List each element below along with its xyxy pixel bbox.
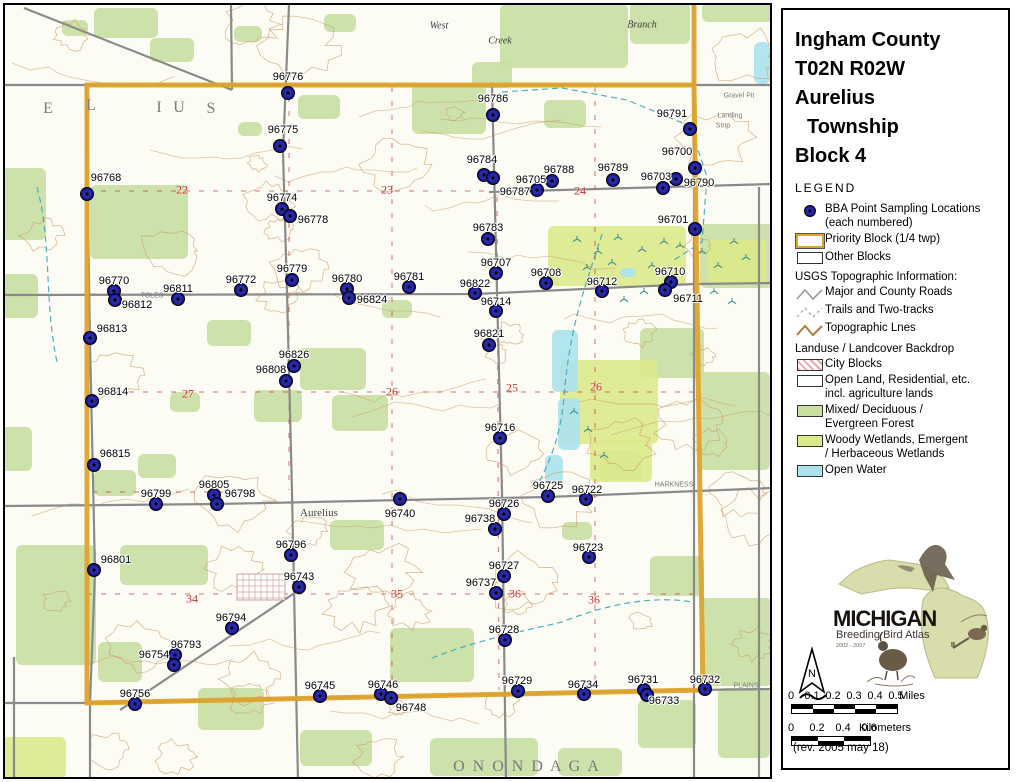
- bba-point-96821: [482, 338, 496, 352]
- place-label: West: [430, 21, 449, 32]
- bba-point-label: 96775: [268, 124, 299, 136]
- bba-point-96786: [486, 108, 500, 122]
- scale-tick: 0.2: [825, 690, 840, 702]
- legend-item-roads: Major and County Roads: [795, 286, 998, 301]
- bba-point-96779: [285, 273, 299, 287]
- bba-point-label: 96813: [97, 323, 128, 335]
- legend-item-wetland: Woody Wetlands, Emergent / Herbaceous We…: [795, 434, 998, 461]
- bba-point-label: 96734: [568, 679, 599, 691]
- bba-point-label: 96774: [267, 192, 298, 204]
- legend-item-label: Major and County Roads: [825, 286, 952, 300]
- title-line: Aurelius: [795, 84, 998, 113]
- bba-point-label: 96789: [598, 162, 629, 174]
- map-title: Ingham County T02N R02W Aurelius Townshi…: [795, 26, 998, 171]
- bba-point-label: 96705: [516, 174, 547, 186]
- bba-point-96788: [545, 174, 559, 188]
- bba-point-label: 96737: [466, 577, 497, 589]
- legend-item-label: Open Land, Residential, etc. incl. agric…: [825, 374, 970, 401]
- place-label: Aurelius: [300, 507, 338, 519]
- bba-point-label: 96768: [91, 172, 122, 184]
- bba-point-label: 96815: [100, 448, 131, 460]
- bba-point-label: 96799: [141, 488, 172, 500]
- other-blocks-icon: [797, 252, 823, 264]
- page: 2223242726252634353636 ELIUSO N O N D A …: [0, 0, 1021, 782]
- bba-point-96790: [656, 181, 670, 195]
- legend-item-open-water: Open Water: [795, 464, 998, 478]
- legend-item-forest: Mixed/ Deciduous / Evergreen Forest: [795, 404, 998, 431]
- svg-text:Breeding Bird Atlas: Breeding Bird Atlas: [836, 629, 930, 641]
- bba-point-label: 96790: [684, 177, 715, 189]
- legend-item-label: BBA Point Sampling Locations (each numbe…: [825, 203, 980, 230]
- bba-point-label: 96776: [273, 71, 304, 83]
- legend-item-label: Other Blocks: [825, 251, 891, 265]
- bba-point-label: 96808: [256, 364, 287, 376]
- open-water-swatch: [797, 465, 823, 477]
- bba-point-96776: [281, 86, 295, 100]
- scale-bar: [791, 704, 898, 714]
- bba-point-96711: [658, 283, 672, 297]
- place-label: S: [207, 100, 218, 118]
- svg-text:N: N: [808, 668, 816, 680]
- section-number: 23: [381, 183, 393, 198]
- section-number: 27: [182, 387, 194, 402]
- bba-point-label: 96727: [489, 560, 520, 572]
- bba-point-label: 96826: [279, 349, 310, 361]
- title-line: Ingham County: [795, 26, 998, 55]
- bba-point-label: 96712: [587, 276, 618, 288]
- bba-point-label: 96733: [649, 695, 680, 707]
- bba-point-96789: [606, 173, 620, 187]
- scale-tick: 0.3: [846, 690, 861, 702]
- bba-point-label: 96811: [163, 283, 193, 295]
- place-label: L: [86, 97, 98, 115]
- usgs-heading: USGS Topographic Information:: [795, 271, 998, 283]
- bba-point-96787: [486, 171, 500, 185]
- legend-item-open-land: Open Land, Residential, etc. incl. agric…: [795, 374, 998, 401]
- legend-item-label: Open Water: [825, 464, 887, 478]
- bba-point-label: 96711: [673, 293, 703, 305]
- place-label: PLAINS: [734, 683, 759, 690]
- section-number: 25: [506, 381, 518, 396]
- place-label: Landing: [718, 113, 743, 120]
- bba-point-96740: [393, 492, 407, 506]
- bba-point-label: 96780: [332, 273, 363, 285]
- scale-tick: 0.2: [809, 722, 824, 734]
- bba-point-96778: [283, 209, 297, 223]
- legend-item-topo-lines: Topographic Lnes: [795, 322, 998, 337]
- bba-point-96813: [83, 331, 97, 345]
- legend-item-label: Topographic Lnes: [825, 322, 916, 336]
- bba-point-96798: [210, 497, 224, 511]
- bba-point-label: 96824: [357, 294, 388, 306]
- bba-point-96815: [87, 458, 101, 472]
- bba-point-label: 96728: [489, 624, 520, 636]
- logo-name: MICHIGAN: [833, 606, 936, 631]
- section-number: 24: [574, 184, 586, 199]
- bba-point-label: 96708: [531, 267, 562, 279]
- bba-point-label: 96783: [473, 222, 504, 234]
- place-label: Branch: [627, 20, 656, 31]
- section-number: 36: [509, 587, 521, 602]
- bba-point-label: 96740: [385, 508, 416, 520]
- legend-heading: LEGEND: [795, 181, 998, 195]
- title-line: Township: [795, 113, 998, 142]
- svg-text:2002 - 2007: 2002 - 2007: [836, 643, 865, 649]
- bba-point-96812: [108, 293, 122, 307]
- legend-panel: Ingham County T02N R02W Aurelius Townshi…: [781, 8, 1010, 770]
- place-label: Creek: [488, 36, 512, 47]
- scale-bar-miles: 00.10.20.30.40.5Miles: [791, 690, 976, 714]
- priority-block-icon: [796, 234, 824, 248]
- svg-text:II: II: [951, 642, 955, 649]
- bba-point-label: 96778: [298, 214, 329, 226]
- bba-point-label: 96796: [276, 539, 307, 551]
- title-line: Block 4: [795, 142, 998, 171]
- bba-point-label: 96722: [572, 484, 603, 496]
- open-land-swatch: [797, 375, 823, 387]
- scale-tick: 0.1: [804, 690, 819, 702]
- scale-unit: Miles: [899, 690, 925, 702]
- bba-point-label: 96729: [502, 675, 533, 687]
- scale-tick: 0.4: [835, 722, 850, 734]
- bba-point-label: 96707: [481, 257, 512, 269]
- wetland-swatch: [797, 435, 823, 447]
- legend-item-trails: Trails and Two-tracks: [795, 304, 998, 319]
- bba-point-label: 96788: [544, 164, 575, 176]
- bba-point-label: 96812: [122, 299, 153, 311]
- section-number: 34: [186, 592, 198, 607]
- michigan-bba-logo: MICHIGAN Breeding Bird Atlas 2002 - 2007…: [831, 538, 1011, 690]
- title-line: T02N R02W: [795, 55, 998, 84]
- city-blocks-swatch: [797, 359, 823, 371]
- legend-item-label: Woody Wetlands, Emergent / Herbaceous We…: [825, 434, 968, 461]
- bba-point-label: 96793: [171, 639, 202, 651]
- bba-point-label: 96743: [284, 571, 315, 583]
- scale-unit: Kilometers: [859, 722, 911, 734]
- trail-zigzag-icon: [796, 305, 824, 319]
- legend-item-label: Trails and Two-tracks: [825, 304, 934, 318]
- bba-point-label: 96821: [474, 328, 505, 340]
- map-area: 2223242726252634353636 ELIUSO N O N D A …: [3, 3, 772, 779]
- legend-item-bba: BBA Point Sampling Locations (each numbe…: [795, 203, 998, 230]
- bba-point-96791: [683, 122, 697, 136]
- bba-point-label: 96754: [139, 649, 170, 661]
- bba-point-label: 96779: [277, 263, 308, 275]
- bba-point-label: 96723: [573, 542, 604, 554]
- section-number: 36: [588, 593, 600, 608]
- scale-tick: 0: [788, 690, 794, 702]
- bba-point-label: 96798: [225, 488, 256, 500]
- bba-point-label: 96701: [658, 214, 689, 226]
- section-number: 35: [391, 587, 403, 602]
- bba-point-96824: [342, 291, 356, 305]
- road-zigzag-icon: [796, 287, 824, 301]
- bba-point-label: 96725: [533, 480, 564, 492]
- place-label: Strip: [716, 123, 730, 130]
- bba-point-label: 96745: [305, 680, 336, 692]
- map-space: 2223242726252634353636 ELIUSO N O N D A …: [3, 3, 772, 779]
- legend-item-label: City Blocks: [825, 358, 882, 372]
- bba-point-label: 96748: [396, 702, 427, 714]
- bba-point-96768: [80, 187, 94, 201]
- bba-point-label: 96814: [98, 386, 129, 398]
- place-label: Gravel Pit: [724, 93, 755, 100]
- bba-point-label: 96732: [690, 674, 721, 686]
- scale-tick: 0: [788, 722, 794, 734]
- forest-swatch: [797, 405, 823, 417]
- place-label: I: [156, 99, 163, 117]
- landuse-heading: Landuse / Landcover Backdrop: [795, 343, 998, 355]
- bba-point-96700: [688, 161, 702, 175]
- bba-point-label: 96710: [655, 266, 686, 278]
- legend-item-other-blocks: Other Blocks: [795, 251, 998, 265]
- bba-point-label: 96801: [101, 554, 132, 566]
- bba-point-icon: [804, 205, 816, 217]
- bba-point-label: 96703: [641, 171, 672, 183]
- bba-point-label: 96714: [481, 296, 512, 308]
- bba-point-label: 96746: [368, 679, 399, 691]
- place-label: U: [173, 99, 187, 117]
- bba-point-label: 96700: [662, 146, 693, 158]
- legend-item-city-blocks: City Blocks: [795, 358, 998, 372]
- bba-point-96826: [287, 359, 301, 373]
- section-number: 26: [386, 385, 398, 400]
- bba-point-96775: [273, 139, 287, 153]
- revision-note: (rev. 2005 may 18): [793, 742, 889, 754]
- place-label: O N O N D A G A: [453, 758, 601, 776]
- bba-point-96801: [87, 563, 101, 577]
- section-number: 26: [590, 380, 602, 395]
- section-number: 22: [176, 183, 188, 198]
- bba-point-label: 96791: [657, 108, 688, 120]
- legend-item-label: Mixed/ Deciduous / Evergreen Forest: [825, 404, 923, 431]
- place-label: HARKNESS: [655, 482, 694, 489]
- bba-point-label: 96731: [628, 674, 659, 686]
- bba-point-label: 96726: [489, 498, 520, 510]
- legend-item-priority-block: Priority Block (1/4 twp): [795, 233, 998, 248]
- bba-point-label: 96787: [500, 186, 531, 198]
- bba-point-label: 96786: [478, 93, 509, 105]
- bba-point-label: 96772: [226, 274, 257, 286]
- bba-point-label: 96794: [216, 612, 247, 624]
- bba-point-label: 96756: [120, 688, 151, 700]
- bba-point-96783: [481, 232, 495, 246]
- bba-point-label: 96716: [485, 422, 516, 434]
- bba-point-96701: [688, 222, 702, 236]
- bba-point-label: 96770: [99, 275, 130, 287]
- michigan-state-icon: MICHIGAN Breeding Bird Atlas 2002 - 2007…: [831, 538, 1011, 690]
- scale-tick: 0.4: [867, 690, 882, 702]
- bba-point-label: 96784: [467, 154, 498, 166]
- topo-zigzag-icon: [796, 323, 824, 337]
- bba-point-label: 96822: [460, 278, 491, 290]
- legend-item-label: Priority Block (1/4 twp): [825, 233, 940, 247]
- place-label: E: [43, 100, 55, 118]
- bba-point-label: 96781: [394, 271, 425, 283]
- bba-point-label: 96738: [465, 513, 496, 525]
- bba-point-96808: [279, 374, 293, 388]
